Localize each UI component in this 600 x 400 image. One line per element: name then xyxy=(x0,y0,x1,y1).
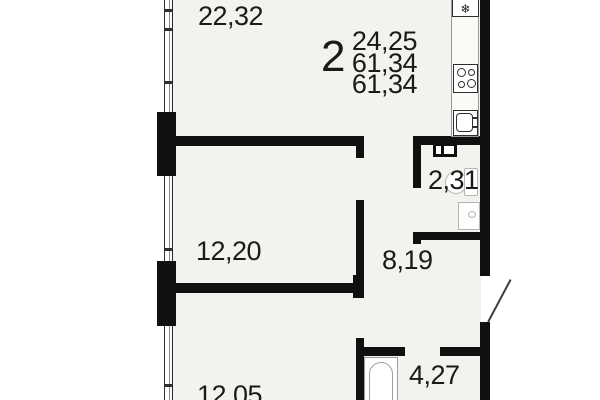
sink-basin xyxy=(456,113,473,132)
wall-outer-right-upper xyxy=(480,0,490,276)
wall-corner-stub xyxy=(356,136,364,158)
window-frame-tick xyxy=(164,384,173,387)
wall-living-bedroom1 xyxy=(175,136,364,146)
kitchen-sink-icon xyxy=(453,110,478,136)
room-label-bedroom2: 12,05 xyxy=(197,382,262,400)
wall-end-cap xyxy=(353,275,363,298)
burner-icon xyxy=(458,81,465,88)
room-label-wc: 2,31 xyxy=(428,167,479,194)
wall-bedroom2-bathroom xyxy=(356,338,364,400)
room-label-hallway: 8,19 xyxy=(382,247,433,274)
washbasin-icon xyxy=(458,202,480,230)
burner-icon xyxy=(468,69,475,76)
wall-pier xyxy=(157,261,176,326)
window-icon xyxy=(164,0,173,112)
window-glazing-line xyxy=(169,326,170,400)
wall-pier xyxy=(157,112,176,176)
room-label-bathroom: 4,27 xyxy=(409,362,460,389)
apartment-total-area-alt: 61,34 xyxy=(347,74,417,96)
vent-shaft-icon xyxy=(433,143,457,157)
vent-divider xyxy=(441,146,444,154)
room-label-bedroom1: 12,20 xyxy=(196,238,261,265)
faucet-icon xyxy=(472,126,478,128)
window-glazing-line xyxy=(169,0,170,112)
bathtub-inner xyxy=(369,362,393,400)
apartment-rooms-count: 2 xyxy=(321,35,345,79)
snowflake-icon: ❄ xyxy=(460,2,470,16)
burner-icon xyxy=(467,79,476,88)
wall-outer-right-lower xyxy=(480,322,490,400)
window-frame-tick xyxy=(164,81,173,84)
fridge-icon: ❄ xyxy=(452,0,479,17)
apartment-info: 24,25 61,34 61,34 xyxy=(347,31,417,96)
window-frame-tick xyxy=(164,28,173,31)
wall-bathroom-top-left xyxy=(364,347,405,356)
window-icon xyxy=(164,326,173,400)
wall-wc-left-upper xyxy=(413,145,421,188)
window-frame-tick xyxy=(164,248,173,251)
room-label-living: 22,32 xyxy=(198,3,263,30)
bathtub-icon xyxy=(364,357,398,400)
drain-icon xyxy=(468,211,476,218)
faucet-icon xyxy=(472,117,478,119)
window-frame-tick xyxy=(164,9,173,12)
stove-icon xyxy=(453,64,478,93)
entrance-door-icon xyxy=(487,279,511,322)
wall-bedroom1-bedroom2 xyxy=(175,283,363,293)
burner-icon xyxy=(457,68,466,77)
floor-plan: ❄ 22,32 12,20 12,05 8,19 2,31 4,27 2 24,… xyxy=(0,0,600,400)
wall-wc-hall xyxy=(413,232,490,240)
wall-bathroom-top-right xyxy=(440,347,481,356)
